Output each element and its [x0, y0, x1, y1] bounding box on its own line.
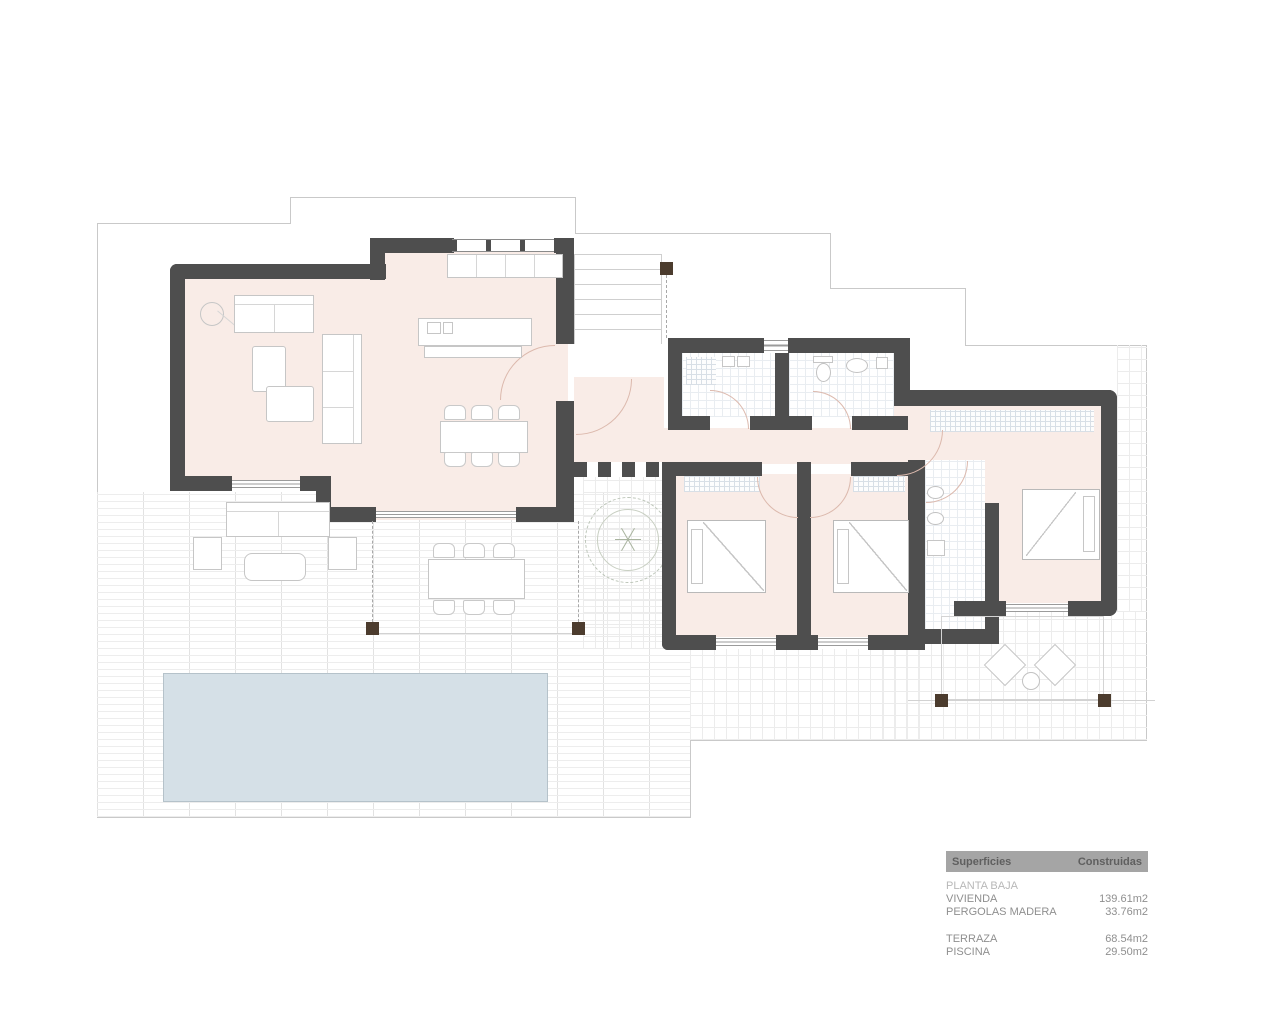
pergola-post [572, 622, 585, 635]
laundry-window [764, 340, 788, 351]
dining-chair [471, 452, 493, 467]
wall-segment [668, 338, 764, 353]
wall-segment [908, 460, 925, 644]
outdoor-chair [433, 543, 455, 558]
boundary-line [97, 817, 691, 818]
boundary-line [830, 233, 831, 288]
wall-segment [668, 416, 710, 430]
outdoor-dining-table [428, 559, 525, 599]
wardrobe-master [930, 410, 1094, 432]
slatted-window [574, 462, 662, 477]
legend-col-superficies: Superficies [952, 856, 1011, 868]
outdoor-chair [463, 600, 485, 615]
outdoor-chair [433, 600, 455, 615]
pillow [837, 529, 849, 584]
sink-icon [846, 358, 868, 373]
wall-segment [662, 635, 716, 650]
wall-segment [750, 416, 812, 430]
wall-segment [662, 462, 762, 476]
entry-steps [574, 254, 662, 344]
pergola-dashed-line [666, 275, 667, 338]
corridor-floor [574, 428, 896, 464]
boundary-line [830, 288, 965, 289]
wall-segment [797, 462, 811, 650]
wall-segment [1101, 390, 1117, 616]
wall-segment [170, 264, 185, 491]
armchair [266, 386, 314, 422]
bed-blanket-line [1026, 492, 1076, 556]
patio-table [1022, 672, 1040, 690]
kitchen-sink [443, 322, 453, 334]
wall-segment [556, 401, 574, 522]
wall-segment [170, 264, 386, 279]
legend-row-value: 33.76m2 [1105, 906, 1148, 919]
pergola-post [366, 622, 379, 635]
legend-row-label: VIVIENDA [946, 893, 997, 906]
outdoor-chair [493, 543, 515, 558]
outdoor-chair [463, 543, 485, 558]
dining-table [440, 421, 528, 453]
outdoor-armchair [328, 537, 357, 570]
kitchen-sink [427, 322, 441, 334]
outdoor-armchair [193, 537, 222, 570]
sofa-three-seat [322, 334, 362, 444]
pergola-beam [372, 633, 585, 634]
kitchen-cabinets [447, 254, 563, 278]
legend-row-value: 139.61m2 [1099, 893, 1148, 906]
legend-row-piscina: PISCINA 29.50m2 [946, 946, 1148, 959]
dining-chair [471, 405, 493, 420]
legend-section-label: PLANTA BAJA [946, 880, 1148, 893]
living-window [232, 480, 302, 488]
floor-plan: Superficies Construidas PLANTA BAJA VIVI… [0, 0, 1280, 1024]
legend-row-label: TERRAZA [946, 933, 997, 946]
toilet-icon [816, 363, 831, 382]
boundary-line [965, 288, 966, 345]
wall-segment [776, 635, 818, 650]
swimming-pool [163, 673, 548, 802]
bathroom-cabinet [876, 357, 888, 369]
wall-segment [1068, 601, 1117, 616]
shower-icon [927, 540, 945, 556]
legend-row-value: 29.50m2 [1105, 946, 1148, 959]
legend-row-vivienda: VIVIENDA 139.61m2 [946, 893, 1148, 906]
pergola-dashed-line [372, 521, 373, 622]
pergola-post [660, 262, 673, 275]
toilet-tank [813, 356, 833, 363]
wall-segment [788, 338, 908, 353]
laundry-unit [686, 357, 716, 385]
wall-segment [170, 476, 232, 491]
pergola-dashed-line [578, 521, 579, 622]
boundary-line [690, 740, 1147, 741]
pillow [1083, 496, 1095, 552]
legend-header: Superficies Construidas [946, 851, 1148, 872]
boundary-line [575, 197, 576, 233]
pergola-post [935, 694, 948, 707]
legend-col-construidas: Construidas [1078, 856, 1142, 868]
dining-chair [498, 405, 520, 420]
sink-icon [927, 512, 944, 525]
legend-row-label: PERGOLAS MADERA [946, 906, 1057, 919]
bed-blanket-line [703, 522, 764, 591]
legend-table: Superficies Construidas PLANTA BAJA VIVI… [946, 851, 1148, 959]
bedroom1-window [716, 638, 776, 646]
tree [585, 497, 671, 583]
legend-row-label: PISCINA [946, 946, 990, 959]
wall-segment [370, 238, 454, 253]
bed-blanket-line [849, 522, 907, 591]
legend-spacer [946, 919, 1148, 933]
washer-icon [722, 356, 735, 367]
wall-segment [894, 390, 1117, 406]
boundary-line [97, 223, 290, 224]
boundary-line [575, 233, 830, 234]
dining-window [376, 511, 518, 518]
outdoor-chair [493, 600, 515, 615]
legend-row-value: 68.54m2 [1105, 933, 1148, 946]
legend-row-pergolas: PERGOLAS MADERA 33.76m2 [946, 906, 1148, 919]
dining-chair [498, 452, 520, 467]
legend-row-terraza: TERRAZA 68.54m2 [946, 933, 1148, 946]
kitchen-window [452, 239, 556, 252]
wall-segment [852, 416, 908, 430]
master-window [1006, 604, 1068, 612]
pergola-outline [941, 616, 1104, 700]
sink-icon [927, 486, 944, 499]
boundary-line [690, 740, 691, 817]
bedroom2-window [818, 638, 868, 646]
dining-chair [444, 452, 466, 467]
terrace-paving-east-strip [1117, 345, 1147, 612]
sofa-two-seat [234, 295, 314, 333]
kitchen-island-ledge [424, 346, 522, 358]
washer-icon [737, 356, 750, 367]
outdoor-coffee-table [244, 553, 306, 581]
dining-chair [444, 405, 466, 420]
boundary-line [290, 197, 575, 198]
pergola-post [1098, 694, 1111, 707]
wall-segment [662, 462, 676, 650]
outdoor-sofa [226, 502, 330, 537]
boundary-line [290, 197, 291, 224]
pillow [691, 529, 703, 584]
